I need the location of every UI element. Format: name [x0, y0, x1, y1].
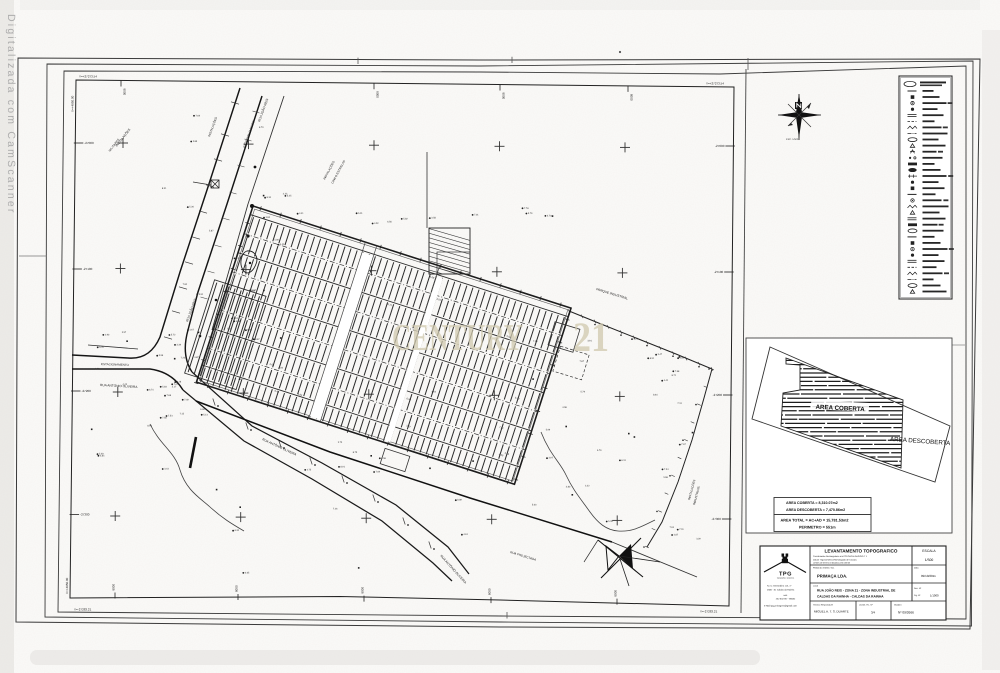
svg-text:Fig. Nº: Fig. Nº [914, 594, 921, 597]
svg-text:4.42: 4.42 [280, 243, 285, 246]
svg-text:1/1000: 1/1000 [930, 594, 939, 598]
svg-text:E-Mail tpg.peritagens@gmail.c: E-Mail tpg.peritagens@gmail.com [764, 605, 797, 608]
svg-text:3.39: 3.39 [177, 343, 182, 346]
svg-text:4.08: 4.08 [562, 406, 567, 409]
svg-text:8000: 8000 [488, 588, 492, 595]
svg-text:8000: 8000 [375, 91, 379, 98]
svg-text:5.79: 5.79 [581, 390, 586, 393]
svg-text:CALDAS DA RAINHA - CALDAS DA R: CALDAS DA RAINHA - CALDAS DA RAINHA [817, 595, 884, 599]
svg-text:6.58: 6.58 [381, 457, 386, 460]
svg-text:8.06: 8.06 [247, 329, 252, 332]
svg-text:8.70: 8.70 [259, 126, 264, 129]
svg-text:3.73: 3.73 [338, 441, 343, 444]
svg-text:4.84: 4.84 [100, 454, 105, 457]
svg-text:7.90: 7.90 [183, 283, 188, 286]
svg-text:7.45: 7.45 [533, 340, 538, 343]
svg-text:Técnico Responsável: Técnico Responsável [813, 604, 833, 607]
svg-text:4.52: 4.52 [374, 222, 379, 225]
svg-text:topografia e projectos: topografia e projectos [777, 577, 794, 580]
svg-text:X=+4950.00: X=+4950.00 [65, 577, 69, 594]
svg-text:5.79: 5.79 [528, 212, 533, 215]
svg-text:5.60: 5.60 [532, 504, 537, 507]
svg-text:AREA COBERTA = 8,310.07m2: AREA COBERTA = 8,310.07m2 [786, 501, 838, 505]
svg-text:-27300: -27300 [80, 513, 90, 517]
svg-text:7.46: 7.46 [333, 507, 338, 510]
svg-text:3.57: 3.57 [122, 331, 127, 334]
svg-text:21: 21 [573, 315, 609, 361]
svg-text:8.94: 8.94 [147, 424, 152, 427]
svg-text:-27000: -27000 [715, 144, 725, 148]
svg-text:5.91: 5.91 [199, 293, 204, 296]
svg-text:AREA DESCOBERTA = 7,470.86m2: AREA DESCOBERTA = 7,470.86m2 [786, 508, 845, 512]
svg-text:8.71: 8.71 [672, 374, 677, 377]
svg-text:7.01: 7.01 [474, 213, 479, 216]
svg-text:PRIMAÇA LDA.: PRIMAÇA LDA. [817, 574, 847, 579]
svg-text:7.15: 7.15 [180, 412, 185, 415]
svg-text:3.80: 3.80 [566, 486, 571, 489]
svg-text:3.29: 3.29 [696, 538, 701, 541]
svg-text:Outubro: Outubro [894, 604, 902, 607]
svg-text:5.96: 5.96 [159, 354, 164, 357]
svg-text:5.25: 5.25 [287, 194, 292, 197]
svg-text:5.31: 5.31 [358, 212, 363, 215]
svg-text:4.61: 4.61 [463, 533, 468, 536]
svg-text:3.22: 3.22 [585, 485, 590, 488]
svg-text:3.70: 3.70 [547, 214, 552, 217]
svg-text:09/10/2011: 09/10/2011 [921, 574, 936, 578]
svg-text:4.64: 4.64 [432, 390, 437, 393]
svg-text:3.98: 3.98 [663, 476, 668, 479]
svg-text:4.67: 4.67 [189, 329, 194, 332]
svg-text:3.90: 3.90 [266, 216, 271, 219]
svg-text:5.35: 5.35 [608, 520, 613, 523]
svg-text:3.28: 3.28 [177, 381, 182, 384]
svg-text:5.82: 5.82 [403, 217, 408, 220]
svg-text:8.91: 8.91 [341, 465, 346, 468]
svg-text:7.67: 7.67 [681, 443, 686, 446]
svg-text:7.34: 7.34 [664, 468, 669, 471]
svg-text:RUA JOÃO REIS - ZONA 21 - ZONA: RUA JOÃO REIS - ZONA 21 - ZONA INDUSTRIA… [817, 589, 895, 593]
svg-text:3.43: 3.43 [164, 468, 169, 471]
svg-text:8.34: 8.34 [267, 196, 272, 199]
svg-text:7.83: 7.83 [297, 220, 302, 223]
svg-text:3.17: 3.17 [172, 385, 177, 388]
svg-text:4.41: 4.41 [299, 212, 304, 215]
svg-text:8000: 8000 [111, 584, 115, 591]
svg-text:CENTURY: CENTURY [392, 317, 523, 359]
svg-text:MIGUEL A. T. S. DUARTE: MIGUEL A. T. S. DUARTE [814, 610, 849, 614]
svg-text:6.79: 6.79 [597, 449, 602, 452]
svg-text:Y=-27283.21: Y=-27283.21 [74, 608, 92, 612]
svg-text:8000: 8000 [122, 88, 126, 95]
svg-text:8.51: 8.51 [162, 187, 167, 190]
svg-text:8.89: 8.89 [457, 499, 462, 502]
svg-text:5.28: 5.28 [634, 338, 639, 341]
svg-text:7.69: 7.69 [376, 471, 381, 474]
svg-text:Limites de terreno indicados p: Limites de terreno indicados pelo client… [813, 561, 851, 564]
svg-text:6.86: 6.86 [236, 320, 241, 323]
svg-text:8.75: 8.75 [353, 451, 358, 454]
svg-text:6.20: 6.20 [235, 529, 240, 532]
svg-text:8.51: 8.51 [650, 357, 655, 360]
svg-text:6.28: 6.28 [236, 257, 241, 260]
svg-text:ESC. 1/500: ESC. 1/500 [786, 138, 799, 141]
svg-text:TPG: TPG [779, 572, 792, 578]
svg-text:4.90: 4.90 [105, 333, 110, 336]
svg-text:LEVANTAMENTO TOPOGRAFICO: LEVANTAMENTO TOPOGRAFICO [825, 549, 898, 554]
svg-text:Digitalizada com CamScanner: Digitalizada com CamScanner [5, 14, 17, 215]
svg-text:8000: 8000 [629, 94, 633, 101]
svg-text:Local: Local [813, 585, 819, 588]
svg-text:3.58: 3.58 [431, 217, 436, 220]
svg-text:7.78: 7.78 [524, 207, 529, 210]
svg-text:7.53: 7.53 [168, 415, 173, 418]
svg-text:6.00: 6.00 [279, 366, 284, 369]
svg-text:6.69: 6.69 [200, 408, 205, 411]
svg-text:-27200: -27200 [82, 389, 92, 393]
svg-text:4.89: 4.89 [680, 357, 685, 360]
svg-text:5.26: 5.26 [189, 206, 194, 209]
svg-text:262 832 95 – 96682: 262 832 95 – 96682 [776, 598, 796, 601]
svg-text:5.53: 5.53 [227, 328, 232, 331]
svg-text:8000: 8000 [361, 587, 365, 594]
svg-text:8.64: 8.64 [653, 394, 658, 397]
svg-text:3.89: 3.89 [193, 140, 198, 143]
svg-text:5.13: 5.13 [203, 413, 208, 416]
svg-text:telef.: telef. [783, 594, 788, 597]
svg-text:AREA TOTAL = AC+AD = 15,781.53: AREA TOTAL = AC+AD = 15,781.53m2 [781, 519, 849, 523]
svg-text:7.49: 7.49 [184, 398, 189, 401]
svg-text:4.00: 4.00 [274, 238, 279, 241]
svg-text:7.68: 7.68 [167, 394, 172, 397]
svg-text:7.31: 7.31 [677, 402, 682, 405]
svg-text:7.98: 7.98 [675, 370, 680, 373]
svg-text:4.41: 4.41 [664, 379, 669, 382]
svg-text:3.97: 3.97 [549, 457, 554, 460]
svg-text:Y=+27273.54: Y=+27273.54 [706, 82, 724, 86]
svg-text:4.87: 4.87 [194, 356, 199, 359]
svg-text:Av. D. Bernardino 114, 1º: Av. D. Bernardino 114, 1º [767, 585, 792, 588]
svg-text:3.47: 3.47 [658, 353, 663, 356]
svg-text:4.31: 4.31 [95, 368, 100, 371]
svg-text:3/4: 3/4 [871, 611, 876, 615]
svg-text:ESCALA: ESCALA [922, 549, 936, 553]
svg-text:3.29: 3.29 [241, 378, 246, 381]
svg-text:Des. Nº: Des. Nº [914, 587, 921, 590]
svg-text:4.75: 4.75 [307, 468, 312, 471]
svg-text:2500 - 81 Caldas da Rainha: 2500 - 81 Caldas da Rainha [767, 589, 795, 592]
svg-text:4.87: 4.87 [674, 534, 679, 537]
svg-text:7.01: 7.01 [679, 528, 684, 531]
svg-text:5.83: 5.83 [162, 385, 167, 388]
svg-text:-27000: -27000 [84, 141, 94, 145]
svg-text:7.69: 7.69 [196, 114, 201, 117]
svg-text:-27200: -27200 [713, 393, 723, 397]
svg-text:5.61: 5.61 [234, 317, 239, 320]
svg-text:5.72: 5.72 [171, 334, 176, 337]
svg-text:6.65: 6.65 [245, 571, 250, 574]
svg-text:-27100: -27100 [714, 270, 724, 274]
svg-text:-27100: -27100 [83, 267, 93, 271]
svg-text:X=+4950.00: X=+4950.00 [71, 95, 75, 112]
svg-text:Y=+27273.54: Y=+27273.54 [79, 75, 97, 79]
svg-text:8000: 8000 [613, 590, 617, 597]
svg-text:Levant. Fls. Nº: Levant. Fls. Nº [859, 604, 873, 607]
svg-text:Y=-27283.21: Y=-27283.21 [700, 610, 718, 614]
svg-text:6.31: 6.31 [621, 459, 626, 462]
svg-text:5.87: 5.87 [209, 230, 214, 233]
svg-text:7.23: 7.23 [181, 356, 186, 359]
svg-text:1/500: 1/500 [925, 558, 934, 562]
svg-text:5.99: 5.99 [546, 429, 551, 432]
svg-text:Nº 09/2666: Nº 09/2666 [898, 611, 914, 615]
svg-text:6.56: 6.56 [387, 220, 392, 223]
svg-text:Pedido do Cliente, Sra.: Pedido do Cliente, Sra. [813, 567, 835, 570]
svg-text:Datum Trigonometrico/Homologad: Datum Trigonometrico/Homologado de Casca… [813, 558, 857, 561]
svg-text:8.67: 8.67 [252, 289, 257, 292]
svg-text:7.04: 7.04 [670, 526, 675, 529]
svg-text:-27300: -27300 [712, 517, 722, 521]
svg-text:8000: 8000 [234, 585, 238, 592]
svg-text:6.74: 6.74 [149, 388, 154, 391]
svg-text:8000: 8000 [501, 92, 505, 99]
svg-text:PERIMETRO = 551m: PERIMETRO = 551m [799, 526, 836, 530]
svg-text:Coordenadas Rectangulares em P: Coordenadas Rectangulares em POVOACALDAS… [813, 555, 868, 558]
svg-text:8.67: 8.67 [255, 338, 260, 341]
svg-text:5.79: 5.79 [99, 346, 104, 349]
